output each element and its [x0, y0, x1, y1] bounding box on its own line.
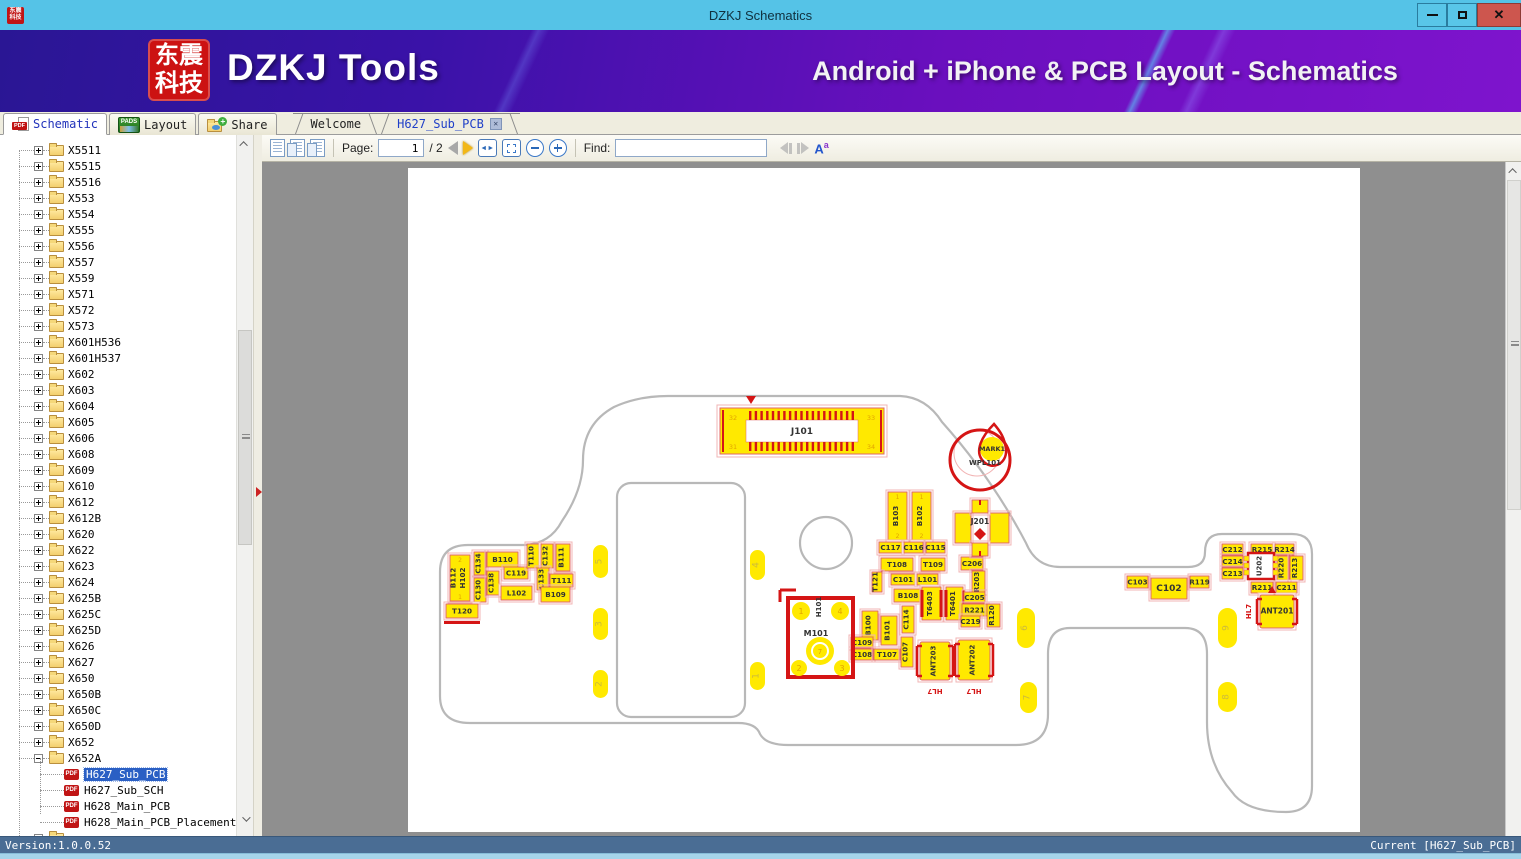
tree-item-label: X625D: [68, 624, 101, 637]
tab-layout[interactable]: PADS Layout: [109, 113, 196, 135]
tree-connector: [19, 550, 34, 551]
folder-icon: [49, 145, 64, 156]
expand-toggle[interactable]: [34, 514, 43, 523]
folder-icon: [49, 737, 64, 748]
tree-item-label: X625B: [68, 592, 101, 605]
tree-item-X612[interactable]: X612: [0, 494, 236, 510]
expand-toggle[interactable]: [34, 274, 43, 283]
tree-item-label: X604: [68, 400, 95, 413]
toolbar-separator: [575, 139, 576, 157]
folder-icon: [49, 289, 64, 300]
svg-text:B108: B108: [898, 591, 918, 600]
svg-text:33: 33: [867, 414, 875, 422]
tree-item-X620[interactable]: X620: [0, 526, 236, 542]
tree-connector: [19, 534, 34, 535]
folder-icon: [49, 385, 64, 396]
svg-text:T107: T107: [877, 650, 897, 659]
tree-item-X559[interactable]: X559: [0, 270, 236, 286]
tree-connector: [19, 294, 34, 295]
folder-icon: [49, 177, 64, 188]
toolbar-separator: [333, 139, 334, 157]
tree-item-X625B[interactable]: X625B: [0, 590, 236, 606]
expand-toggle[interactable]: [34, 290, 43, 299]
expand-toggle[interactable]: [34, 402, 43, 411]
expand-toggle[interactable]: [34, 578, 43, 587]
tree-item-label: X557: [68, 256, 95, 269]
find-next-icon[interactable]: [797, 142, 809, 154]
tree-item-X612B[interactable]: X612B: [0, 510, 236, 526]
tree-item-X606[interactable]: X606: [0, 430, 236, 446]
svg-text:B101: B101: [883, 620, 892, 640]
fit-page-button[interactable]: [502, 139, 521, 157]
tree-item-label: H628_Main_PCB_Placement: [84, 816, 236, 829]
fit-width-button[interactable]: ◄►: [478, 139, 497, 157]
svg-text:T109: T109: [923, 560, 943, 569]
svg-text:C134: C134: [474, 553, 483, 573]
tree-item-X554[interactable]: X554: [0, 206, 236, 222]
share-icon: +: [207, 118, 227, 132]
tree-item-label: X620: [68, 528, 95, 541]
tree-connector: [19, 502, 34, 503]
tree-connector: [19, 326, 34, 327]
svg-text:MARK1: MARK1: [979, 445, 1006, 453]
svg-text:7: 7: [818, 648, 822, 656]
svg-text:C138: C138: [487, 573, 496, 593]
svg-text:HL7: HL7: [1245, 604, 1253, 619]
tree-item-label: X624: [68, 576, 95, 589]
tree-item-label: X555: [68, 224, 95, 237]
expand-toggle[interactable]: [34, 610, 43, 619]
svg-text:HL7: HL7: [927, 687, 942, 695]
viewer-scrollbar-thumb[interactable]: [1507, 180, 1521, 510]
banner: 东震科技 DZKJ Tools Android + iPhone & PCB L…: [0, 30, 1521, 112]
tree-connector: [19, 726, 34, 727]
tree-item-label: X573: [68, 320, 95, 333]
tree-item-X557[interactable]: X557: [0, 254, 236, 270]
tree-item-label: X612: [68, 496, 95, 509]
document-viewer: 532416798B112H10221C134C130C138B110C119L…: [262, 162, 1521, 836]
folder-icon: [49, 705, 64, 716]
folder-icon: [49, 209, 64, 220]
tree-item-X604[interactable]: X604: [0, 398, 236, 414]
expand-toggle[interactable]: [34, 450, 43, 459]
tree-connector: [19, 390, 34, 391]
expand-toggle[interactable]: [34, 210, 43, 219]
folder-icon: [49, 305, 64, 316]
svg-text:H102: H102: [458, 567, 467, 588]
expand-toggle[interactable]: [34, 498, 43, 507]
expand-toggle[interactable]: [34, 594, 43, 603]
tree-item-X553[interactable]: X553: [0, 190, 236, 206]
tree-item-label: X625C: [68, 608, 101, 621]
tree-item-X5515[interactable]: X5515: [0, 158, 236, 174]
folder-icon: [49, 561, 64, 572]
folder-icon: [49, 593, 64, 604]
svg-text:C214: C214: [1222, 557, 1242, 566]
font-size-icon[interactable]: Aa: [814, 140, 828, 156]
svg-text:C130: C130: [474, 580, 483, 600]
expand-toggle[interactable]: [34, 706, 43, 715]
tree-connector: [19, 470, 34, 471]
tree-item-label: X559: [68, 272, 95, 285]
svg-text:C116: C116: [903, 543, 923, 552]
tree-item-X603[interactable]: X603: [0, 382, 236, 398]
expand-toggle[interactable]: [34, 642, 43, 651]
svg-text:C132: C132: [541, 546, 550, 566]
tree-connector: [40, 806, 64, 807]
tree-item-X610[interactable]: X610: [0, 478, 236, 494]
tree-item-X609[interactable]: X609: [0, 462, 236, 478]
svg-text:1: 1: [752, 673, 762, 679]
expand-toggle[interactable]: [34, 722, 43, 731]
pcb-component-J201-pad: [990, 513, 1009, 543]
folder-icon: [49, 625, 64, 636]
expand-toggle[interactable]: [34, 658, 43, 667]
tree-connector: [19, 486, 34, 487]
tree-item-X556[interactable]: X556: [0, 238, 236, 254]
svg-text:B109: B109: [545, 590, 565, 599]
doc-tab-h627-sub-pcb[interactable]: H627_Sub_PCB ✕: [379, 113, 520, 134]
tree-item-label: X603: [68, 384, 95, 397]
zoom-out-button[interactable]: [526, 139, 544, 157]
tree-item-label: X650: [68, 672, 95, 685]
svg-text:R120: R120: [987, 605, 996, 626]
svg-text:L102: L102: [507, 589, 527, 598]
pdf-icon: PDF: [12, 117, 29, 132]
toolbar: Page: / 2 ◄► Find: Aa: [262, 135, 1521, 162]
tree-item-label: X556: [68, 240, 95, 253]
current-document-text: Current [H627_Sub_PCB]: [1370, 839, 1516, 852]
folder-icon: [49, 689, 64, 700]
brand-logo: 东震科技: [148, 39, 210, 101]
svg-text:L101: L101: [918, 575, 938, 584]
svg-text:T120: T120: [452, 607, 472, 616]
doc-tab-welcome[interactable]: Welcome: [293, 113, 380, 134]
tree-connector: [19, 694, 34, 695]
svg-text:H101: H101: [815, 597, 823, 618]
tree-item-label: X610: [68, 480, 95, 493]
expand-toggle[interactable]: [34, 834, 43, 837]
svg-text:R211: R211: [1252, 583, 1273, 592]
tree-item-H628_Main_PCB[interactable]: PDFH628_Main_PCB: [0, 798, 236, 814]
tab-bar: PDF Schematic PADS Layout + Share Welcom…: [0, 112, 1521, 135]
tree-item-label: X601H537: [68, 352, 121, 365]
tree-item-H628_Main_PCB_Placement[interactable]: PDFH628_Main_PCB_Placement: [0, 814, 236, 830]
tree-connector: [19, 630, 34, 631]
pcb-component-J201-pad: [955, 513, 971, 543]
svg-text:B103: B103: [891, 506, 900, 526]
status-bar: Version:1.0.0.52 Current [H627_Sub_PCB]: [0, 836, 1521, 853]
tree-item-partial[interactable]: [0, 830, 236, 836]
expand-toggle[interactable]: [34, 530, 43, 539]
folder-icon: [49, 273, 64, 284]
tree-item-X572[interactable]: X572: [0, 302, 236, 318]
svg-text:HL7: HL7: [966, 687, 981, 695]
svg-text:C205: C205: [964, 593, 984, 602]
tree-item-label: X572: [68, 304, 95, 317]
tree-item-X608[interactable]: X608: [0, 446, 236, 462]
sidebar: X5511X5515X5516X553X554X555X556X557X559X…: [0, 135, 262, 836]
sidebar-scrollbar[interactable]: [236, 135, 253, 836]
title-bar: 东震科技 DZKJ Schematics ✕: [0, 0, 1521, 30]
tree-item-X623[interactable]: X623: [0, 558, 236, 574]
find-label: Find:: [584, 141, 611, 155]
page-label: Page:: [342, 141, 373, 155]
page-total: / 2: [429, 141, 442, 155]
expand-toggle[interactable]: [34, 146, 43, 155]
expand-toggle[interactable]: [34, 386, 43, 395]
svg-text:WPL101: WPL101: [969, 459, 1001, 467]
expand-toggle[interactable]: [34, 466, 43, 475]
svg-text:M101: M101: [804, 629, 829, 638]
tab-schematic[interactable]: PDF Schematic: [3, 113, 107, 135]
svg-text:1: 1: [458, 594, 462, 601]
tree-item-label: X652: [68, 736, 95, 749]
tree-connector: [40, 774, 64, 775]
svg-text:4: 4: [837, 607, 842, 616]
tree-connector: [19, 278, 34, 279]
copy-pages-icon[interactable]: [290, 139, 305, 157]
previous-page-button[interactable]: [448, 141, 458, 155]
svg-text:J201: J201: [970, 517, 989, 526]
folder-icon: [49, 529, 64, 540]
tab-share[interactable]: + Share: [198, 113, 276, 135]
version-text: Version:1.0.0.52: [5, 839, 111, 852]
svg-text:T6403: T6403: [925, 591, 934, 616]
expand-toggle[interactable]: [34, 690, 43, 699]
tree-item-label: X5516: [68, 176, 101, 189]
svg-text:T110: T110: [527, 546, 536, 566]
folder-icon: [49, 545, 64, 556]
tree-item-X652A[interactable]: X652A: [0, 750, 236, 766]
tree-connector: [19, 246, 34, 247]
pdf-icon: PDF: [64, 801, 79, 812]
snapshot-icon[interactable]: [310, 139, 325, 157]
tree-connector: [19, 582, 34, 583]
scroll-up-icon[interactable]: [1506, 162, 1521, 179]
tree-item-X626[interactable]: X626: [0, 638, 236, 654]
svg-text:B111: B111: [557, 547, 566, 567]
expand-toggle[interactable]: [34, 674, 43, 683]
svg-text:T108: T108: [887, 560, 907, 569]
tree-connector: [19, 710, 34, 711]
svg-text:T121: T121: [871, 572, 880, 592]
tree-item-X625D[interactable]: X625D: [0, 622, 236, 638]
folder-icon: [49, 497, 64, 508]
tree-item-X622[interactable]: X622: [0, 542, 236, 558]
svg-text:C117: C117: [880, 543, 900, 552]
expand-toggle[interactable]: [34, 194, 43, 203]
scroll-up-icon[interactable]: [237, 135, 253, 152]
folder-icon: [49, 657, 64, 668]
pdf-icon: PDF: [64, 817, 79, 828]
tree-item-label: X622: [68, 544, 95, 557]
svg-text:1: 1: [798, 607, 803, 616]
tree-item-label: H627_Sub_PCB: [84, 768, 167, 781]
expand-toggle[interactable]: [34, 434, 43, 443]
tree-item-X650B[interactable]: X650B: [0, 686, 236, 702]
tree-item-X624[interactable]: X624: [0, 574, 236, 590]
tree-item-X5511[interactable]: X5511: [0, 142, 236, 158]
folder-icon: [49, 257, 64, 268]
folder-icon: [49, 337, 64, 348]
svg-text:U202: U202: [1256, 556, 1264, 576]
svg-text:2: 2: [896, 533, 900, 540]
tree-item-X5516[interactable]: X5516: [0, 174, 236, 190]
tree-connector: [19, 342, 34, 343]
tree-connector: [19, 214, 34, 215]
tree-item-X625C[interactable]: X625C: [0, 606, 236, 622]
tree-item-X601H537[interactable]: X601H537: [0, 350, 236, 366]
tree-item-label: X608: [68, 448, 95, 461]
tree-guide-line: [40, 758, 41, 814]
find-previous-icon[interactable]: [780, 142, 792, 154]
svg-text:B100: B100: [864, 615, 873, 635]
svg-text:R221: R221: [964, 606, 985, 615]
tree-connector: [19, 230, 34, 231]
pdf-page[interactable]: 532416798B112H10221C134C130C138B110C119L…: [408, 168, 1360, 832]
pdf-icon: PDF: [64, 785, 79, 796]
svg-text:C211: C211: [1276, 583, 1296, 592]
sidebar-splitter[interactable]: [253, 135, 262, 836]
sidebar-scrollbar-thumb[interactable]: [238, 330, 252, 545]
svg-text:ANT201: ANT201: [1261, 607, 1294, 616]
board-slot-cutout: [617, 483, 745, 717]
folder-icon: [49, 401, 64, 412]
tree-connector: [19, 310, 34, 311]
pcb-drawing: 532416798B112H10221C134C130C138B110C119L…: [408, 168, 1360, 832]
banner-tagline: Android + iPhone & PCB Layout - Schemati…: [790, 56, 1420, 87]
svg-text:R119: R119: [1189, 578, 1210, 587]
zoom-in-button[interactable]: [549, 139, 567, 157]
tree-item-H627_Sub_PCB[interactable]: PDFH627_Sub_PCB: [0, 766, 236, 782]
tree-item-X601H536[interactable]: X601H536: [0, 334, 236, 350]
svg-text:C213: C213: [1222, 569, 1242, 578]
folder-icon: [49, 417, 64, 428]
expand-toggle[interactable]: [34, 306, 43, 315]
svg-text:C103: C103: [1127, 578, 1147, 587]
tree-connector: [19, 646, 34, 647]
folder-icon: [49, 833, 64, 837]
svg-text:2: 2: [796, 664, 801, 673]
tree-connector: [40, 822, 64, 823]
expand-toggle[interactable]: [34, 418, 43, 427]
board-hole: [800, 517, 852, 569]
tree-item-label: X602: [68, 368, 95, 381]
tree-item-X602[interactable]: X602: [0, 366, 236, 382]
folder-icon: [49, 193, 64, 204]
tree-item-X650[interactable]: X650: [0, 670, 236, 686]
folder-icon: [49, 321, 64, 332]
next-page-button[interactable]: [463, 141, 473, 155]
expand-toggle[interactable]: [34, 482, 43, 491]
tree-item-X571[interactable]: X571: [0, 286, 236, 302]
expand-toggle[interactable]: [34, 162, 43, 171]
pads-icon: PADS: [118, 117, 140, 133]
page-number-input[interactable]: [378, 139, 424, 157]
svg-text:8: 8: [1222, 694, 1232, 700]
tree-item-X650D[interactable]: X650D: [0, 718, 236, 734]
svg-text:2: 2: [458, 557, 462, 564]
tree-item-X555[interactable]: X555: [0, 222, 236, 238]
expand-toggle[interactable]: [34, 338, 43, 347]
tree-connector: [19, 166, 34, 167]
tree-item-label: X5515: [68, 160, 101, 173]
tree-connector: [19, 614, 34, 615]
tree-item-label: X650C: [68, 704, 101, 717]
find-input[interactable]: [615, 139, 767, 157]
svg-text:ANT203: ANT203: [930, 646, 938, 677]
copy-page-icon[interactable]: [270, 139, 285, 157]
folder-icon: [49, 753, 64, 764]
tree-item-label: X627: [68, 656, 95, 669]
folder-icon: [49, 609, 64, 620]
viewer-scrollbar[interactable]: [1505, 162, 1521, 836]
tree-connector: [19, 454, 34, 455]
expand-toggle[interactable]: [34, 754, 43, 763]
tree-connector: [19, 262, 34, 263]
expand-toggle[interactable]: [34, 546, 43, 555]
expand-toggle[interactable]: [34, 738, 43, 747]
tree-item-label: X605: [68, 416, 95, 429]
svg-text:C114: C114: [902, 609, 911, 629]
tree-connector: [19, 758, 34, 759]
svg-text:C115: C115: [925, 543, 945, 552]
folder-icon: [49, 241, 64, 252]
expand-toggle[interactable]: [34, 258, 43, 267]
tree-item-X573[interactable]: X573: [0, 318, 236, 334]
svg-text:C102: C102: [1156, 584, 1181, 594]
tree-item-X627[interactable]: X627: [0, 654, 236, 670]
svg-text:C212: C212: [1222, 545, 1242, 554]
tree-item-label: X553: [68, 192, 95, 205]
tree-item-label: X601H536: [68, 336, 121, 349]
tree-item-label: X650B: [68, 688, 101, 701]
tree-item-label: X5511: [68, 144, 101, 157]
tree-item-H627_Sub_SCH[interactable]: PDFH627_Sub_SCH: [0, 782, 236, 798]
schematic-tree: X5511X5515X5516X553X554X555X556X557X559X…: [0, 142, 236, 836]
scroll-down-icon[interactable]: [237, 810, 253, 827]
bottom-strip: [0, 853, 1521, 859]
doc-tab-close-icon[interactable]: ✕: [490, 118, 502, 130]
expand-toggle[interactable]: [34, 370, 43, 379]
tree-item-label: X571: [68, 288, 95, 301]
expand-toggle[interactable]: [34, 322, 43, 331]
tree-item-X652[interactable]: X652: [0, 734, 236, 750]
expand-toggle[interactable]: [34, 354, 43, 363]
expand-toggle[interactable]: [34, 562, 43, 571]
expand-toggle[interactable]: [34, 626, 43, 635]
svg-text:J101: J101: [790, 427, 813, 437]
tree-connector: [40, 790, 64, 791]
tree-connector: [19, 518, 34, 519]
svg-text:B112: B112: [449, 568, 458, 588]
expand-toggle[interactable]: [34, 242, 43, 251]
expand-toggle[interactable]: [34, 226, 43, 235]
tree-item-label: X623: [68, 560, 95, 573]
svg-text:ANT202: ANT202: [969, 645, 977, 676]
tree-item-X605[interactable]: X605: [0, 414, 236, 430]
expand-toggle[interactable]: [34, 178, 43, 187]
tree-item-X650C[interactable]: X650C: [0, 702, 236, 718]
svg-text:B102: B102: [915, 506, 924, 526]
tree-connector: [19, 358, 34, 359]
folder-icon: [49, 449, 64, 460]
svg-text:3: 3: [595, 621, 605, 627]
tree-guide-line: [19, 150, 20, 836]
brand-name: DZKJ Tools: [227, 47, 440, 89]
svg-text:1: 1: [920, 494, 924, 501]
